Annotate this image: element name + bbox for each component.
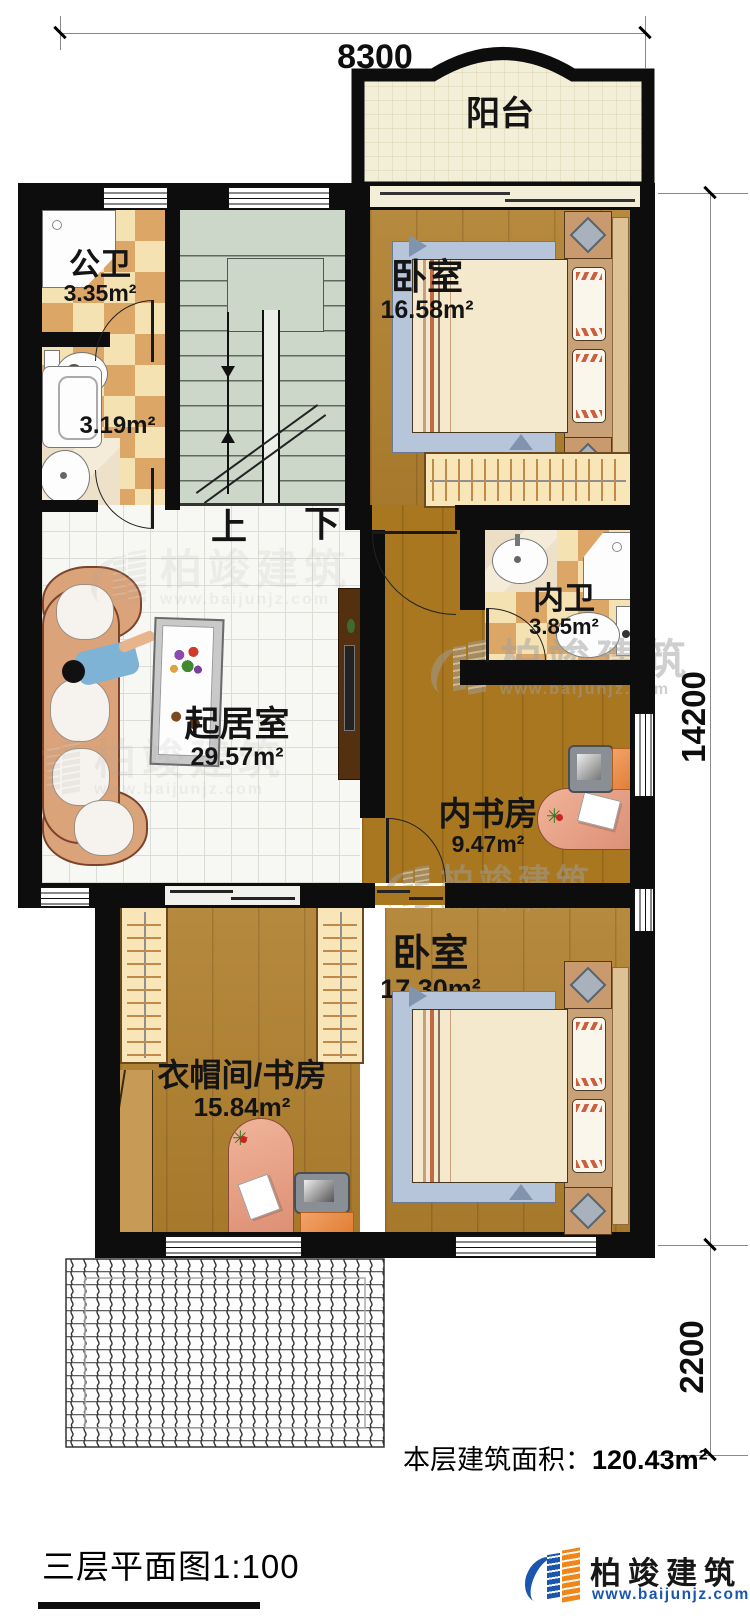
wardrobe-cloakroom-right	[316, 906, 364, 1064]
bed-side-runner	[612, 967, 629, 1225]
room-label-cloakroom-study: 衣帽间/书房 15.84m²	[132, 1058, 352, 1121]
brand-watermark-icon	[92, 548, 150, 610]
desk-plant-flower	[240, 1136, 247, 1143]
chair-seat	[577, 754, 601, 780]
desk-chair	[568, 745, 614, 793]
stair-arrow-up-icon	[221, 424, 235, 443]
bed-bedroom-bottom	[388, 975, 628, 1215]
floor-area-label: 本层建筑面积：	[403, 1445, 592, 1475]
sliding-door-leaf	[231, 897, 295, 900]
room-area: 16.58m²	[368, 297, 486, 324]
bed-pillow	[572, 1099, 606, 1173]
room-label-utility: 3.19m²	[70, 413, 165, 439]
wall-hall-top-b	[455, 505, 655, 530]
sofa-cushion	[50, 678, 110, 742]
wall-hall-top-a	[345, 505, 372, 530]
dimension-line-right	[710, 193, 711, 1455]
plan-title: 三层平面图1:100	[42, 1540, 362, 1588]
window-bedroom-right	[633, 888, 654, 932]
floor-plan: 8300 阳台 上 下	[0, 0, 750, 1620]
room-label-inner-study: 内书房 9.47m²	[418, 796, 558, 856]
wardrobe-bedroom-top	[424, 452, 632, 508]
room-area: 9.47m²	[418, 832, 558, 857]
door-leaf	[386, 818, 389, 883]
floor-area-total: 本层建筑面积：120.43m²	[403, 1438, 733, 1477]
stair-down-label: 下	[298, 505, 346, 544]
room-area: 29.57m²	[163, 744, 311, 771]
room-area: 15.84m²	[132, 1093, 352, 1121]
window-top-2	[228, 186, 330, 209]
sliding-door-leaf	[505, 199, 635, 202]
stair-edge-line	[180, 503, 345, 506]
nightstand	[564, 211, 612, 259]
window-study-right	[633, 713, 654, 797]
door-leaf	[151, 468, 154, 528]
floor-area-value: 120.43m²	[592, 1445, 708, 1475]
brand-site: www.baijunjz.com	[592, 1586, 750, 1604]
room-area: 3.85m²	[508, 615, 620, 639]
room-label-bedroom-top: 卧室 16.58m²	[368, 258, 486, 324]
side-table	[300, 1212, 354, 1234]
nightstand	[564, 1187, 612, 1235]
window-bottom-1	[165, 1235, 302, 1257]
sliding-door-leaf	[170, 890, 233, 893]
stair-up-label: 上	[205, 508, 253, 547]
wall-left	[18, 183, 42, 908]
person-head	[62, 660, 85, 683]
watermark: 柏竣建筑 www.baijunjz.com	[92, 548, 352, 610]
room-name: 起居室	[163, 706, 311, 744]
dimension-ext-right	[658, 1245, 748, 1246]
wall-inner-bath-bottom	[460, 660, 655, 685]
flower-bouquet	[166, 641, 208, 686]
wall-inner-bath-left	[460, 530, 485, 610]
shower-drain-icon	[52, 220, 62, 230]
bed-pillow	[572, 349, 606, 423]
room-label-public-bath: 公卫 3.35m²	[45, 248, 155, 306]
stair-direction-line	[227, 312, 229, 494]
brand-logo-icon	[526, 1546, 584, 1608]
wall-stub	[360, 883, 375, 908]
room-name: 衣帽间/书房	[132, 1058, 352, 1093]
stair-stringer	[262, 310, 280, 505]
bed-side-runner	[612, 217, 629, 475]
side-table	[612, 748, 632, 790]
balcony-sliding-door	[370, 186, 640, 207]
room-label-living-room: 起居室 29.57m²	[163, 706, 311, 771]
door-leaf	[151, 300, 154, 362]
balcony-name: 阳台	[430, 96, 570, 133]
room-area: 3.35m²	[45, 281, 155, 306]
door-leaf	[372, 531, 457, 534]
title-underline	[38, 1602, 260, 1609]
door-leaf	[486, 608, 489, 662]
wall-laundry-stub	[42, 500, 98, 512]
room-name: 公卫	[45, 248, 155, 281]
faucet-icon	[515, 534, 520, 546]
sink-drain-icon	[514, 556, 521, 563]
wall-cloakroom-left	[95, 883, 120, 1258]
stair-arrow-down-icon	[221, 366, 235, 385]
bed-pillow	[572, 267, 606, 341]
window-top-1	[103, 186, 168, 209]
bed-mattress	[412, 1009, 568, 1183]
nightstand	[564, 961, 612, 1009]
wall-study-bottom	[445, 883, 655, 908]
bedroom-bottom-doorway	[375, 886, 445, 905]
sink-drain-icon	[60, 472, 67, 479]
wall-living-study	[360, 530, 385, 818]
door-threshold	[377, 890, 410, 893]
dimension-ext-right	[658, 193, 748, 194]
sliding-door-leaf	[380, 192, 510, 195]
room-name: 卧室	[368, 934, 493, 975]
sofa-cushion	[74, 800, 134, 856]
roof-terrace	[65, 1258, 385, 1448]
dimension-height-main: 14200	[675, 657, 709, 777]
cloakroom-sliding-door	[165, 886, 300, 905]
window-living-left	[40, 886, 90, 907]
plant-icon	[347, 619, 355, 633]
room-name: 内卫	[508, 582, 620, 615]
monitor-screen	[304, 1180, 334, 1202]
wall-bath-stair	[165, 183, 180, 510]
brand-logo: 柏竣建筑 www.baijunjz.com	[526, 1546, 736, 1616]
wall-stair-bedroom	[345, 183, 370, 530]
room-name: 卧室	[368, 258, 486, 297]
door-threshold	[409, 897, 443, 900]
room-label-inner-bath: 内卫 3.85m²	[508, 582, 620, 639]
bed-pillow	[572, 1017, 606, 1091]
balcony-label: 阳台	[430, 96, 570, 133]
dimension-height-terrace: 2200	[673, 1297, 707, 1417]
shower-drain-icon	[612, 542, 622, 552]
monitor	[294, 1172, 350, 1214]
tv-screen	[344, 645, 355, 731]
window-bottom-2	[455, 1235, 597, 1257]
wardrobe-cloakroom-left	[120, 906, 168, 1064]
room-name: 内书房	[418, 796, 558, 832]
